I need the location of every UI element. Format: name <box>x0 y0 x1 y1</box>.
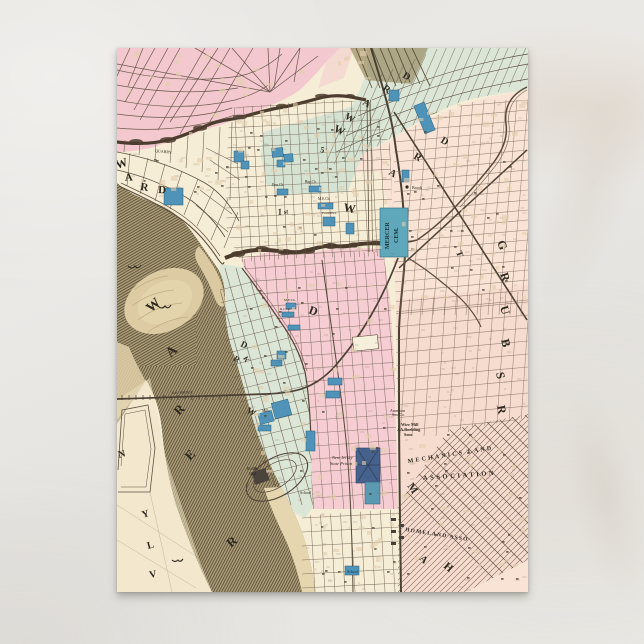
svg-text:Saw Co.: Saw Co. <box>392 413 405 417</box>
svg-text:R.C.Ch.: R.C.Ch. <box>280 307 291 311</box>
svg-text:Brook: Brook <box>412 185 422 190</box>
svg-text:A: A <box>124 171 133 184</box>
svg-text:D: D <box>158 184 167 196</box>
svg-text:M.E.Ch.: M.E.Ch. <box>318 197 330 201</box>
svg-text:School: School <box>347 569 359 574</box>
svg-text:School: School <box>300 490 312 495</box>
svg-text:R.R. BRIDGE: R.R. BRIDGE <box>172 390 194 395</box>
svg-text:New Jersey: New Jersey <box>331 455 353 460</box>
svg-text:Mill: Mill <box>249 471 257 476</box>
svg-text:M.E.Ch.: M.E.Ch. <box>284 298 296 302</box>
svg-text:Pres.Ch.: Pres.Ch. <box>272 183 284 187</box>
svg-text:Mills: Mills <box>262 409 270 413</box>
svg-text:MERCER: MERCER <box>385 222 391 249</box>
svg-text:W: W <box>342 200 356 216</box>
svg-text:Bap.Ch.: Bap.Ch. <box>305 180 317 184</box>
svg-text:CEM.: CEM. <box>394 227 400 243</box>
svg-text:PostOffice: PostOffice <box>322 211 337 215</box>
svg-text:Sons: Sons <box>404 432 413 437</box>
svg-text:State Prison: State Prison <box>330 461 353 466</box>
